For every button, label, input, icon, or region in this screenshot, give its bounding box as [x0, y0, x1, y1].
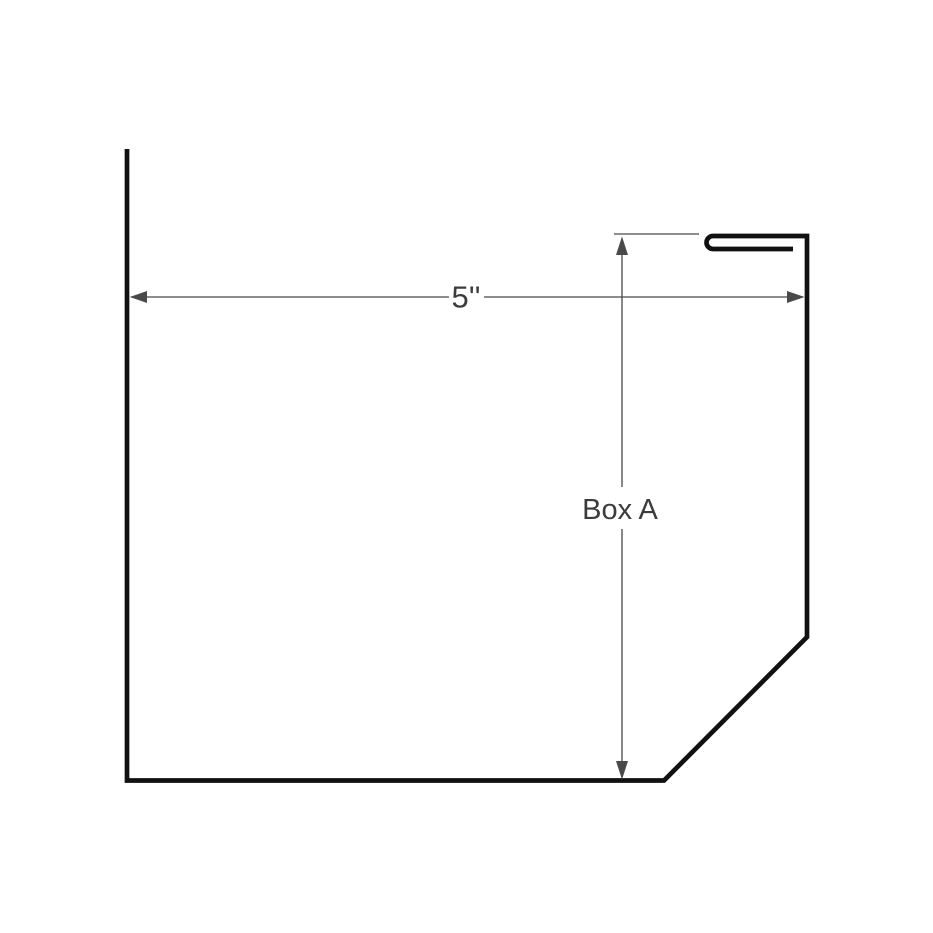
- height-dimension-label: Box A: [582, 494, 658, 526]
- arrowhead-down-icon: [616, 761, 628, 780]
- arrowhead-right-icon: [787, 291, 805, 303]
- height-dimension: Box A: [582, 234, 699, 780]
- arrowhead-up-icon: [616, 237, 628, 256]
- drawing-canvas: 5'' Box A: [0, 0, 933, 933]
- box-profile-diagram: 5'' Box A: [0, 0, 933, 933]
- arrowhead-left-icon: [130, 291, 147, 303]
- box-profile-outline: [127, 149, 807, 781]
- width-dimension: 5'': [130, 280, 805, 315]
- width-dimension-label: 5'': [451, 280, 480, 315]
